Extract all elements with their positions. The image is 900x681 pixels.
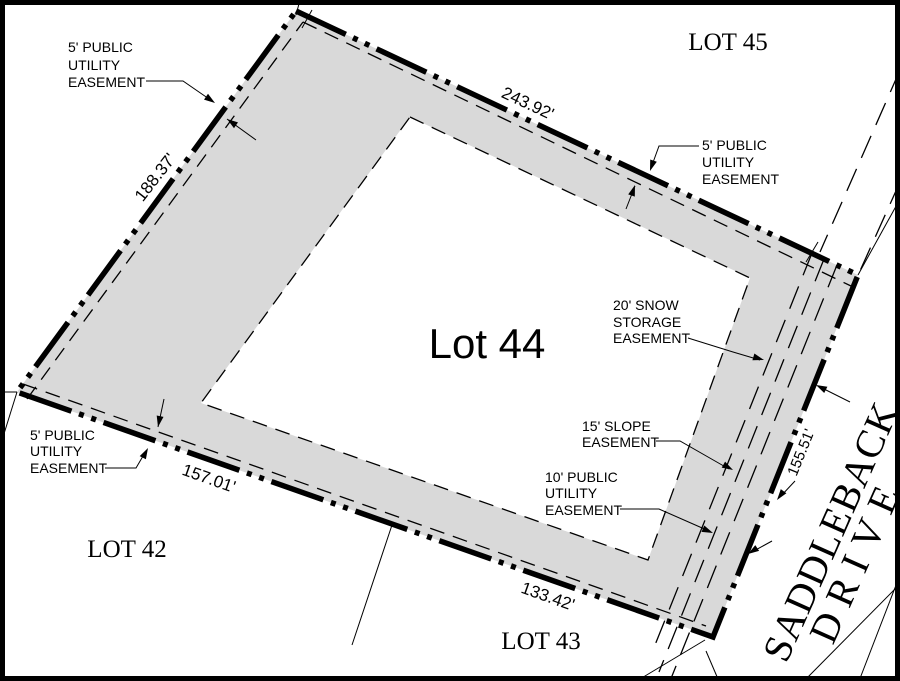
svg-text:UTILITY: UTILITY	[30, 443, 83, 459]
svg-text:20' SNOW: 20' SNOW	[613, 297, 679, 313]
parcel-label: Lot 44	[429, 320, 546, 367]
svg-text:5' PUBLIC: 5' PUBLIC	[30, 427, 95, 443]
svg-text:UTILITY: UTILITY	[702, 154, 755, 170]
svg-text:5' PUBLIC: 5' PUBLIC	[68, 39, 133, 55]
svg-text:EASEMENT: EASEMENT	[30, 460, 107, 476]
svg-text:EASEMENT: EASEMENT	[545, 502, 622, 518]
svg-text:EASEMENT: EASEMENT	[613, 330, 690, 346]
svg-text:STORAGE: STORAGE	[613, 314, 681, 330]
svg-text:EASEMENT: EASEMENT	[582, 434, 659, 450]
svg-text:5' PUBLIC: 5' PUBLIC	[702, 137, 767, 153]
plat-diagram: Lot 44 LOT 45 LOT 42 LOT 43 SADDLEBACK D…	[0, 0, 900, 681]
svg-text:10' PUBLIC: 10' PUBLIC	[545, 469, 618, 485]
svg-text:UTILITY: UTILITY	[68, 57, 121, 73]
svg-text:UTILITY: UTILITY	[545, 485, 598, 501]
svg-text:15' SLOPE: 15' SLOPE	[582, 418, 651, 434]
svg-text:EASEMENT: EASEMENT	[68, 74, 145, 90]
lot43-label: LOT 43	[501, 628, 580, 655]
slope-label: 15' SLOPE EASEMENT	[582, 418, 659, 450]
lot42-label: LOT 42	[87, 536, 166, 563]
lot45-label: LOT 45	[688, 29, 767, 56]
svg-text:EASEMENT: EASEMENT	[702, 171, 779, 187]
